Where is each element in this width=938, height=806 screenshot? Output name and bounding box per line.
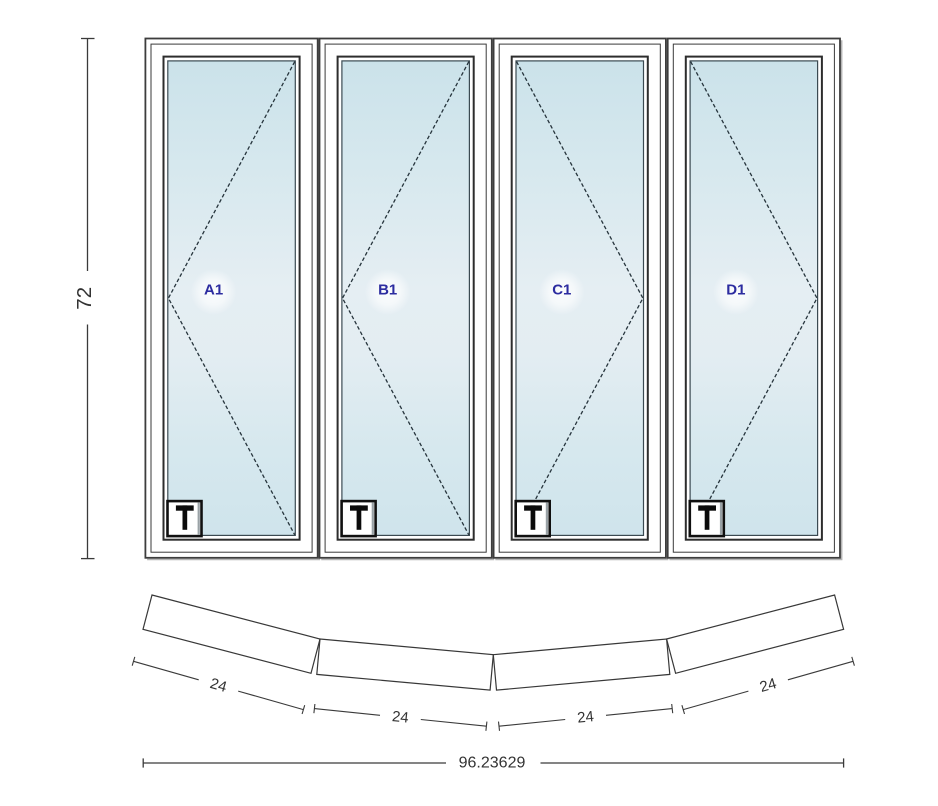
svg-text:24: 24 — [391, 708, 409, 727]
svg-text:24: 24 — [576, 708, 594, 727]
svg-text:B1: B1 — [378, 282, 397, 299]
svg-text:72: 72 — [73, 287, 96, 310]
svg-text:D1: D1 — [726, 282, 745, 299]
svg-text:C1: C1 — [552, 282, 571, 299]
svg-text:96.23629: 96.23629 — [459, 755, 526, 772]
svg-text:A1: A1 — [204, 282, 223, 299]
